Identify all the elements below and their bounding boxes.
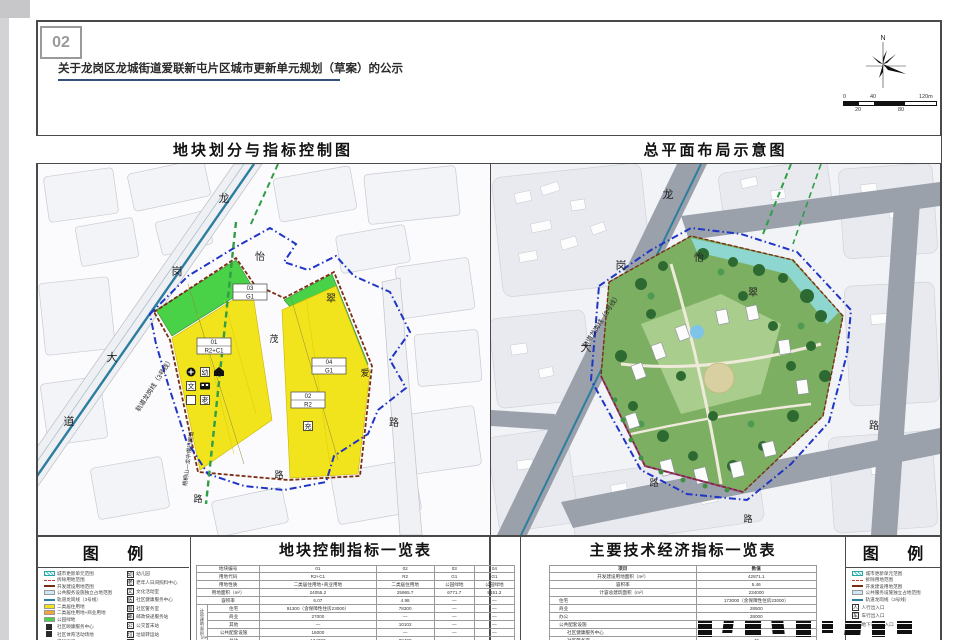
table-cell: 10102 [376, 621, 434, 629]
table-row-label: 其他 [208, 621, 260, 629]
table-cell: 234000 [696, 589, 816, 597]
sheet-number-box: 02 [40, 26, 82, 59]
legend-label: 社区警务室 [136, 606, 159, 611]
parcel-id: 04 [325, 360, 332, 366]
table-cell: G1 [474, 573, 514, 581]
legend-label: 轨道龙岗线（3号线） [866, 597, 910, 602]
legend-swatch-fill-yellow [44, 604, 55, 609]
table-cell: — [376, 629, 434, 637]
legend-swatch-icon-dark [46, 631, 52, 637]
parcel-id: 02 [304, 394, 311, 400]
table-row-label: 住宅 [208, 605, 260, 613]
legend-swatch-dash-red [44, 580, 55, 581]
table-cell: 42871.1 [696, 573, 816, 581]
legend-item: 拆除用地范围 [44, 577, 123, 582]
table-cell: — [434, 621, 474, 629]
table-cell: 78300 [376, 605, 434, 613]
legend-right-title: 图 例 [846, 537, 940, 568]
scale-label: 20 [855, 107, 861, 113]
legend-label: 二类居住用地+商业用地 [57, 610, 106, 615]
legend-label: 开发建设用地范围 [866, 584, 903, 589]
legend-item: 公园绿地 [44, 617, 123, 622]
table-cell: 16000 [260, 629, 376, 637]
legend-label: 拆除用地范围 [57, 577, 85, 582]
table-row-label: 容积率 [550, 581, 697, 589]
map-label: 岗 [171, 265, 182, 278]
compass-north-label: N [880, 35, 885, 42]
table-cell: — [474, 605, 514, 613]
legend-label: 开发建设用地范围 [57, 584, 94, 589]
left-panel-title: 地块划分与指标控制图 [36, 135, 490, 164]
plot-division-map: 01R2+C102R203G104G1 幼文老充 龙岗大道怡翠茂爱路路路轨道龙岗… [38, 164, 490, 535]
table-cell: 88400 [376, 637, 434, 640]
table-cell: 04 [474, 565, 514, 573]
parcel-code: R2+C1 [204, 348, 224, 354]
table-header-cell: 数值 [696, 565, 816, 573]
watermark-fragment [772, 621, 785, 634]
legend-item: 社区体育活动场地 [44, 631, 123, 637]
legend-item: 幼幼儿园 [127, 571, 185, 578]
table-row-label: 总计 [208, 637, 260, 640]
watermark-fragment [822, 621, 833, 633]
table-cell: — [474, 637, 514, 640]
legend-label: 车行出入口 [862, 613, 885, 618]
table-cell: — [474, 629, 514, 637]
table-cell: — [434, 605, 474, 613]
compass-rose: N [862, 30, 910, 96]
legend-swatch-line-darkred [44, 585, 55, 587]
table-row-label: 用地性质 [197, 581, 260, 589]
table-cell: — [474, 597, 514, 605]
legend-item: 轨道龙岗线（3号线） [44, 597, 123, 602]
legend-item: 文文化活动室 [127, 588, 185, 595]
facility-glyph: 文 [187, 381, 194, 390]
legend-item: 公共服务设施独立占地范围 [44, 590, 123, 595]
table-cell: 24055.2 [260, 589, 376, 597]
plot-table: 地块编号01020304用地代码R2+C1R2G1G1用地性质二类居住用地+商业… [196, 565, 515, 640]
table-row-label: 容积率 [197, 597, 260, 605]
compass-icon: N [862, 30, 910, 96]
legend-label: 城市更新单元范围 [57, 571, 94, 576]
legend-swatch-hatch-cyan [44, 571, 55, 576]
table-row-label: 住宅 [550, 597, 697, 605]
table-cell: — [434, 613, 474, 621]
table-row-label: 用地面积（m²） [197, 589, 260, 597]
scale-label: 0 [843, 94, 846, 100]
parcel-code: G1 [324, 368, 333, 374]
plot-table-section: 地块控制指标一览表 地块编号01020304用地代码R2+C1R2G1G1用地性… [191, 537, 520, 640]
watermark-band [698, 621, 964, 640]
table-cell: R2+C1 [260, 573, 376, 581]
legend-label: 社区健康服务中心 [136, 597, 173, 602]
table-cell: R2 [376, 573, 434, 581]
legend-label: 慢行廊道 [57, 639, 75, 640]
table-cell: — [260, 621, 376, 629]
legend-glyph-icon: 车 [852, 612, 859, 619]
econ-table-title: 主要技术经济指标一览表 [521, 537, 845, 563]
legend-label: 幼儿园 [136, 571, 150, 576]
legend-item: 邮邮政快递服务站 [127, 613, 185, 620]
table-cell: 03 [434, 565, 474, 573]
legend-left-section: 图 例 城市更新单元范围拆除用地范围开发建设用地范围公共服务设施独立占地范围轨道… [38, 537, 189, 640]
table-cell: 二类居住用地 [376, 581, 434, 589]
table-row-label: 社区警务室 [550, 637, 697, 640]
table-cell: 4.98 [376, 597, 434, 605]
legend-glyph-icon: 邮 [127, 613, 134, 620]
legend-label: 人行出入口 [862, 605, 885, 610]
legend-label: 垃圾转运站 [136, 632, 159, 637]
table-cell: 公园绿地 [474, 581, 514, 589]
map-label: 龙 [663, 188, 674, 201]
legend-swatch-icon-dark [46, 624, 52, 630]
watermark-fragment [844, 621, 861, 635]
legend-left-col1: 城市更新单元范围拆除用地范围开发建设用地范围公共服务设施独立占地范围轨道龙岗线（… [44, 571, 123, 640]
legend-label: 公交首末站 [136, 623, 159, 628]
map-label: 怡 [694, 251, 704, 264]
legend-item: 公公交首末站 [127, 622, 185, 629]
table-row-label: 用地代码 [197, 573, 260, 581]
parcel-code: R2 [304, 402, 312, 408]
table-header-cell: 项目 [550, 565, 697, 573]
scale-label: 40 [870, 94, 876, 100]
map-label: 路 [649, 477, 658, 488]
watermark-fragment [698, 621, 712, 637]
legend-item: 医社区健康服务中心 [127, 596, 185, 603]
legend-swatch-line-blue [44, 599, 55, 601]
map-label: 岗 [616, 259, 627, 272]
table-cell: — [434, 597, 474, 605]
bus-icon [200, 382, 210, 389]
parcel-id: 03 [246, 286, 253, 292]
table-cell: — [434, 629, 474, 637]
table-cell: G1 [434, 573, 474, 581]
legend-left-col2: 幼幼儿园老老年人日间照料中心文文化活动室医社区健康服务中心警社区警务室邮邮政快递… [127, 571, 185, 640]
table-cell: 公园绿地 [434, 581, 474, 589]
facility-icon [186, 395, 195, 404]
legend-glyph-icon: 人 [852, 604, 859, 611]
table-cell: — [434, 637, 474, 640]
table-cell: — [474, 613, 514, 621]
map-label: 路 [274, 469, 283, 480]
legend-label: 城市更新单元范围 [866, 571, 903, 576]
table-cell: 27000 [260, 613, 376, 621]
watermark-fragment [796, 621, 811, 637]
legend-swatch-line-blue [852, 599, 863, 601]
table-row-label: 办公 [550, 613, 697, 621]
map-label: 爱 [360, 368, 369, 378]
watermark-fragment [872, 621, 885, 637]
legend-label: 公共服务设施独立占地范围 [866, 590, 921, 595]
legend-label: 二类居住用地 [57, 604, 85, 609]
table-cell: 91300（含保障性住房23000） [260, 605, 376, 613]
table-row-label: 公共配套设施 [208, 629, 260, 637]
table-cell: — [376, 613, 434, 621]
table-cell: — [474, 621, 514, 629]
legend-item: 公共服务设施独立占地范围 [852, 590, 936, 595]
table-cell: 6771.7 [434, 589, 474, 597]
legend-label: 轨道龙岗线（3号线） [57, 597, 101, 602]
parcel-id: 01 [210, 340, 217, 346]
table-cell: 8151.2 [474, 589, 514, 597]
map-label: 路 [389, 416, 399, 429]
page-corner-block [0, 0, 30, 18]
table-group-label: 计容建筑面积（m²） [197, 605, 208, 640]
table-cell: 02 [376, 565, 434, 573]
table-cell: 28500 [696, 605, 816, 613]
facility-glyph: 充 [304, 421, 311, 430]
master-layout-map: 龙岗大怡翠路路路轨道龙岗线（3号线） [491, 164, 940, 535]
table-cell: 01 [260, 565, 376, 573]
legend-swatch-fill-green [44, 617, 55, 622]
table-cell: 二类居住用地+商业用地 [260, 581, 376, 589]
table-row-label: 地块编号 [197, 565, 260, 573]
legend-item: 老老年人日间照料中心 [127, 579, 185, 586]
table-row-label: 开发建设用地面积（m²） [550, 573, 697, 581]
map-label: 路 [869, 419, 879, 432]
table-row-label: 公共配套设施 [550, 621, 697, 629]
scale-bar: 0 40 120m 20 80 [843, 94, 937, 116]
sheet-number: 02 [52, 34, 70, 52]
table-cell: 25965.7 [376, 589, 434, 597]
scale-label: 80 [898, 107, 904, 113]
legend-label: 邮政快递服务站 [136, 614, 168, 619]
table-row-label: 商业 [550, 605, 697, 613]
map-label: 路 [193, 493, 202, 504]
legend-label: 文化活动室 [136, 589, 159, 594]
legend-swatch-fill-orange [44, 610, 55, 615]
legend-item: 二类居住用地+商业用地 [44, 610, 123, 615]
map-label: 翠 [326, 293, 336, 305]
table-cell: 173000（含保障性住房23000） [696, 597, 816, 605]
map-label: 翠 [748, 287, 758, 299]
legend-glyph-icon: 文 [127, 588, 134, 595]
page-margin-strip [0, 0, 9, 640]
legend-item: 警社区警务室 [127, 605, 185, 612]
legend-glyph-icon: 公 [127, 622, 134, 629]
legend-item: 车车行出入口 [852, 612, 936, 619]
table-row-label: 计容总建筑面积（m²） [550, 589, 697, 597]
frame-top-line [36, 20, 941, 22]
legend-item: 拆除用地范围 [852, 577, 936, 582]
plot-table-title: 地块控制指标一览表 [191, 537, 520, 563]
legend-item: 开发建设用地范围 [852, 584, 936, 589]
document-title: 关于龙岗区龙城街道爱联新屯片区城市更新单元规划（草案）的公示 [58, 60, 340, 81]
legend-item: 垃垃圾转运站 [127, 631, 185, 638]
legend-item: 轨道龙岗线（3号线） [852, 597, 936, 602]
legend-label: 拆除用地范围 [866, 577, 894, 582]
legend-item: 慢行廊道 [44, 639, 123, 640]
legend-label: 社区颐康服务中心 [57, 624, 94, 629]
map-label: 茂 [269, 333, 278, 344]
legend-glyph-icon: 老 [127, 579, 134, 586]
legend-swatch-hatch-cyan [852, 571, 863, 576]
plot-indicators-table: 地块编号01020304用地代码R2+C1R2G1G1用地性质二类居住用地+商业… [191, 563, 520, 640]
legend-swatch-fill-lightblue [852, 590, 863, 595]
facility-glyph: 幼 [201, 367, 208, 376]
scale-label: 120m [919, 94, 933, 100]
legend-item: 人人行出入口 [852, 604, 936, 611]
legend-swatch-dash-red [852, 580, 863, 581]
legend-left-title: 图 例 [38, 537, 189, 568]
legend-glyph-icon: 医 [127, 596, 134, 603]
legend-glyph-icon: 幼 [127, 571, 134, 578]
table-cell: 6.07 [260, 597, 376, 605]
legend-swatch-line-darkred [852, 585, 863, 587]
legend-glyph-icon: 垃 [127, 631, 134, 638]
legend-label: 公园绿地 [57, 617, 75, 622]
table-cell: 5.46 [696, 581, 816, 589]
legend-item: 城市更新单元范围 [852, 571, 936, 576]
legend-item: 开发建设用地范围 [44, 584, 123, 589]
map-label: 龙 [218, 192, 229, 205]
legend-glyph-icon: 警 [127, 605, 134, 612]
watermark-fragment [897, 621, 912, 634]
legend-swatch-fill-lightblue [44, 590, 55, 595]
legend-label: 社区体育活动场地 [57, 632, 94, 637]
map-label: 大 [106, 350, 117, 364]
legend-item: 二类居住用地 [44, 604, 123, 609]
map-label: 路 [743, 513, 752, 524]
watermark-fragment [723, 621, 735, 633]
legend-label: 公共服务设施独立占地范围 [57, 590, 112, 595]
watermark-fragment [745, 621, 761, 636]
table-row-label: 社区健康服务中心 [550, 629, 697, 637]
table-cell: 28000 [696, 613, 816, 621]
legend-label: 老年人日间照料中心 [136, 580, 177, 585]
legend-item: 社区颐康服务中心 [44, 624, 123, 630]
map-label: 道 [63, 414, 74, 428]
table-cell: 134300 [260, 637, 376, 640]
frame-right-line [940, 20, 942, 640]
table-row-label: 商业 [208, 613, 260, 621]
legend-item: 城市更新单元范围 [44, 571, 123, 576]
map-label: 怡 [255, 250, 265, 263]
facility-glyph: 老 [201, 395, 208, 404]
right-panel-title: 总平面布局示意图 [490, 135, 941, 164]
parcel-code: G1 [245, 294, 254, 300]
